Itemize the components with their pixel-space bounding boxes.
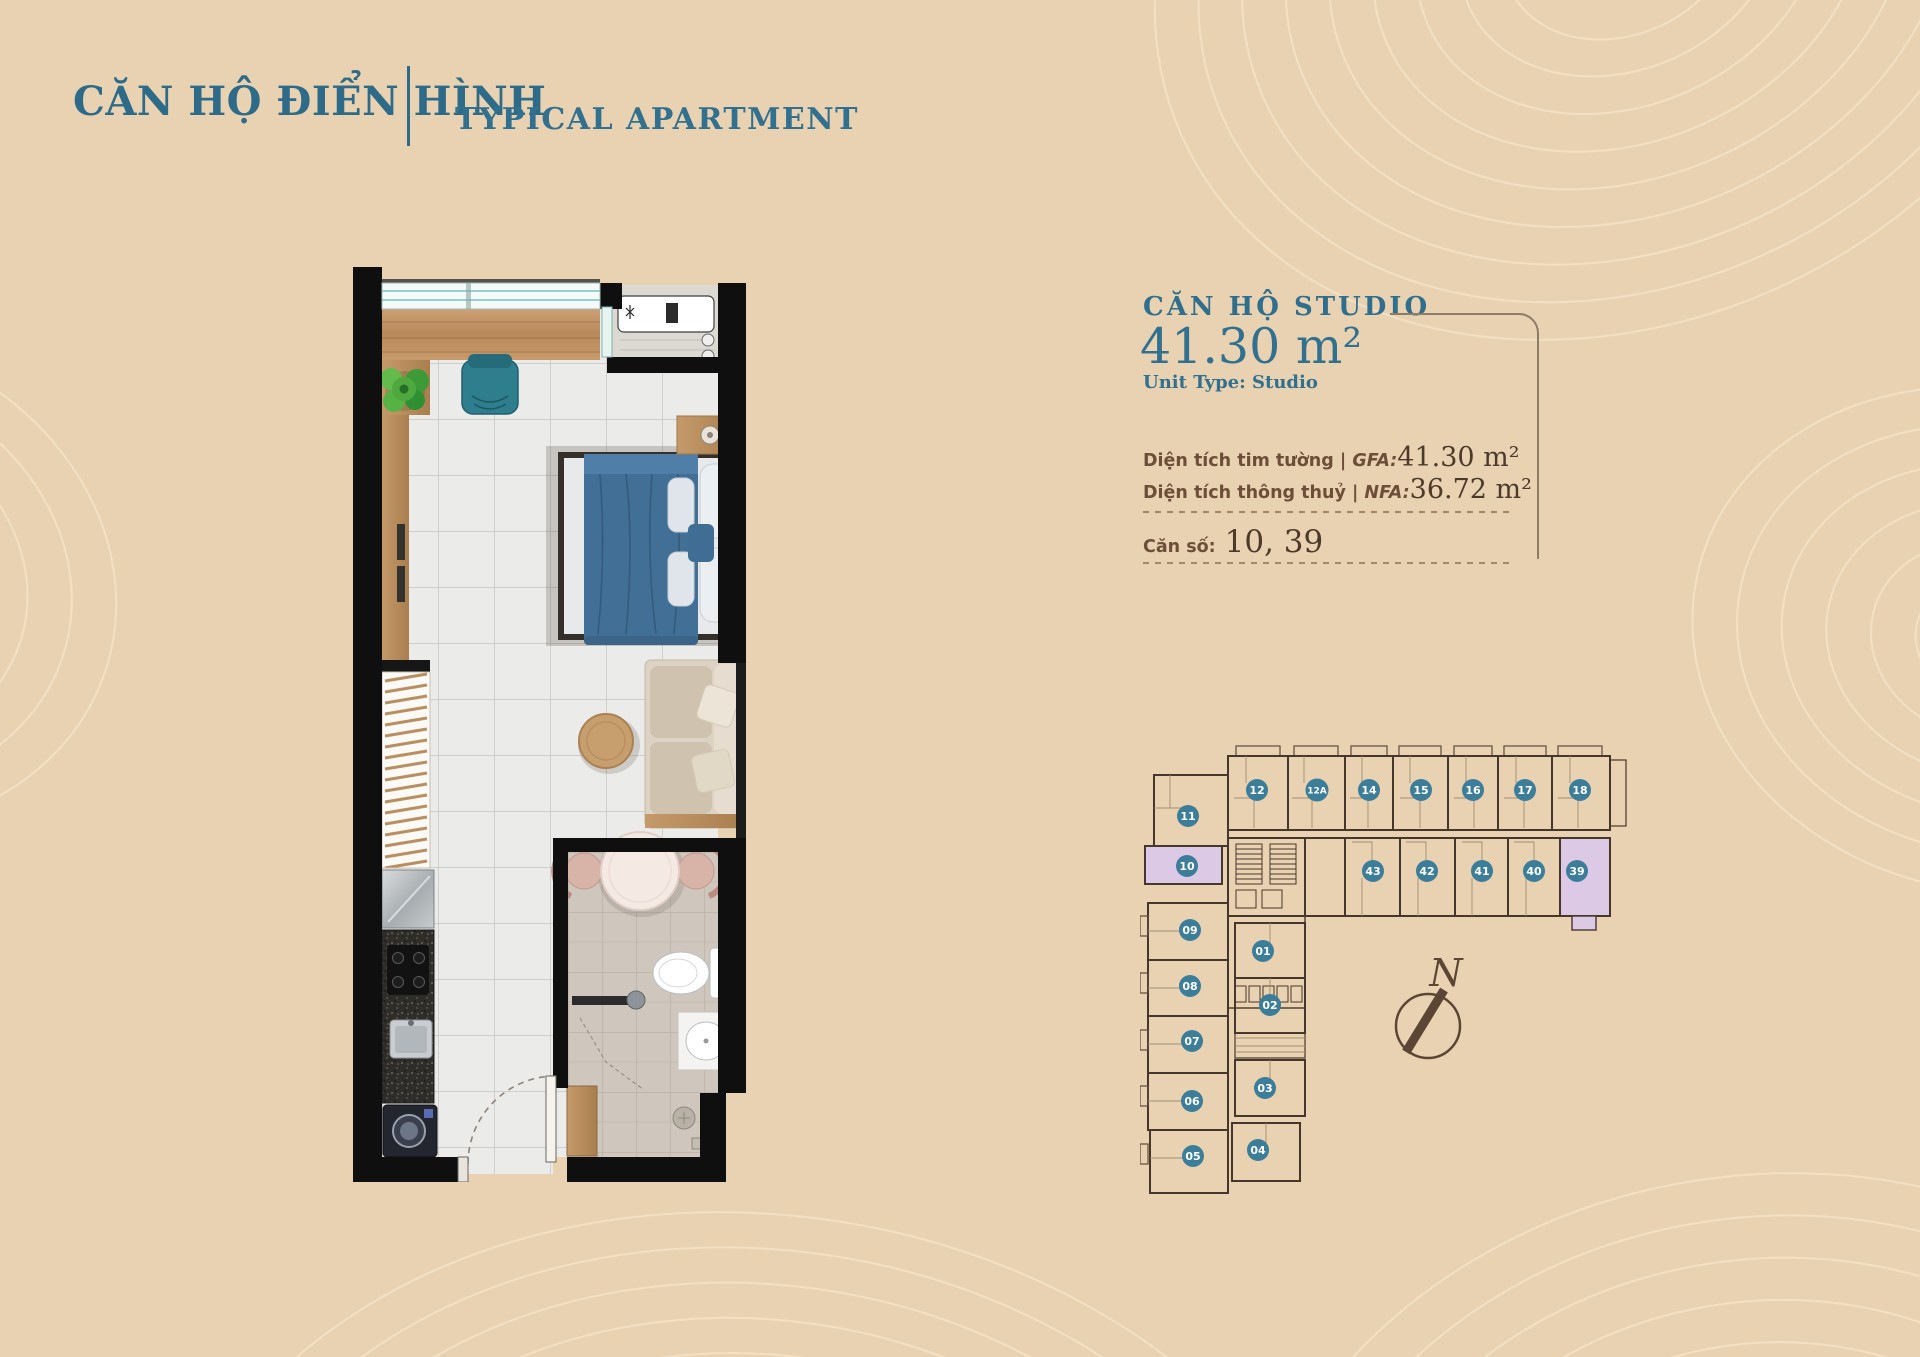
unit-badge-18: 18 (1572, 784, 1587, 797)
contour-group-left (0, 255, 182, 904)
info-bracket-line (1390, 313, 1539, 559)
page-title-english: TYPICAL APARTMENT (455, 102, 859, 137)
key-plan-outline (1140, 746, 1626, 1193)
north-compass: N (1396, 951, 1464, 1058)
glass-partition (602, 307, 612, 357)
unit-badge-12A: 12A (1307, 787, 1327, 797)
desk-chair (462, 354, 518, 414)
kitchen-sink (390, 1020, 432, 1058)
door-leaf (546, 1076, 556, 1162)
unit-badge-04: 04 (1250, 1144, 1266, 1157)
unit-badge-02: 02 (1262, 999, 1277, 1012)
unit-numbers-row: Căn số: 10, 39 (1143, 524, 1323, 560)
highlight-unit-39 (1560, 838, 1610, 930)
unit-badge-11: 11 (1180, 810, 1195, 823)
unit-area: 41.30 m² (1140, 318, 1362, 375)
metric-row-gfa: Diện tích tim tường | GFA: 41.30 m² (1143, 442, 1485, 473)
unit-badge-10: 10 (1179, 860, 1195, 873)
metric-value-nfa: 36.72 m² (1410, 474, 1532, 505)
unit-numbers-value: 10, 39 (1225, 524, 1324, 560)
unit-badge-16: 16 (1465, 784, 1481, 797)
unit-badge-41: 41 (1474, 865, 1489, 878)
unit-badge-06: 06 (1184, 1095, 1200, 1108)
metric-label-gfa: Diện tích tim tường | GFA: (1143, 451, 1397, 471)
unit-badge-12: 12 (1249, 784, 1264, 797)
unit-badge-07: 07 (1184, 1035, 1199, 1048)
unit-type: Unit Type: Studio (1143, 372, 1318, 393)
unit-badge-03: 03 (1257, 1082, 1272, 1095)
metric-row-nfa: Diện tích thông thuỷ | NFA: 36.72 m² (1143, 474, 1485, 505)
washing-machine (383, 1105, 437, 1157)
unit-badge-05: 05 (1185, 1150, 1200, 1163)
sofa (645, 660, 746, 828)
window (382, 279, 600, 309)
unit-badge-15: 15 (1413, 784, 1428, 797)
unit-badges: 12 12A 14 15 16 17 18 11 10 43 42 41 40 … (1176, 779, 1591, 1168)
metric-label-nfa: Diện tích thông thuỷ | NFA: (1143, 483, 1410, 503)
unit-badge-43: 43 (1365, 865, 1380, 878)
sofa-pillow (690, 748, 735, 793)
unit-badge-17: 17 (1517, 784, 1532, 797)
unit-badge-40: 40 (1526, 865, 1542, 878)
unit-badge-39: 39 (1569, 865, 1584, 878)
cooktop (387, 945, 429, 995)
key-plan: 12 12A 14 15 16 17 18 11 10 43 42 41 40 … (1140, 738, 1685, 1218)
accent-cushion (688, 524, 714, 562)
louver-cabinet (382, 672, 430, 868)
bed (546, 446, 746, 646)
brochure-page: CĂN HỘ ĐIỂN HÌNH TYPICAL APARTMENT CĂN H… (0, 0, 1920, 1357)
north-label: N (1428, 951, 1464, 995)
bathroom-door (567, 1086, 597, 1156)
wardrobe-handle (397, 524, 405, 560)
unit-badge-42: 42 (1419, 865, 1434, 878)
dashed-divider-top (1143, 511, 1511, 513)
dashed-divider-bottom (1143, 562, 1511, 564)
header-divider (407, 66, 410, 146)
plant (380, 368, 429, 412)
apartment-floor-plan (353, 267, 746, 1182)
wardrobe-handle (397, 566, 405, 602)
unit-badge-09: 09 (1182, 924, 1197, 937)
metric-value-gfa: 41.30 m² (1397, 442, 1519, 473)
unit-numbers-label: Căn số: (1143, 537, 1216, 557)
unit-badge-14: 14 (1361, 784, 1377, 797)
unit-badge-08: 08 (1182, 980, 1197, 993)
unit-badge-01: 01 (1255, 945, 1270, 958)
